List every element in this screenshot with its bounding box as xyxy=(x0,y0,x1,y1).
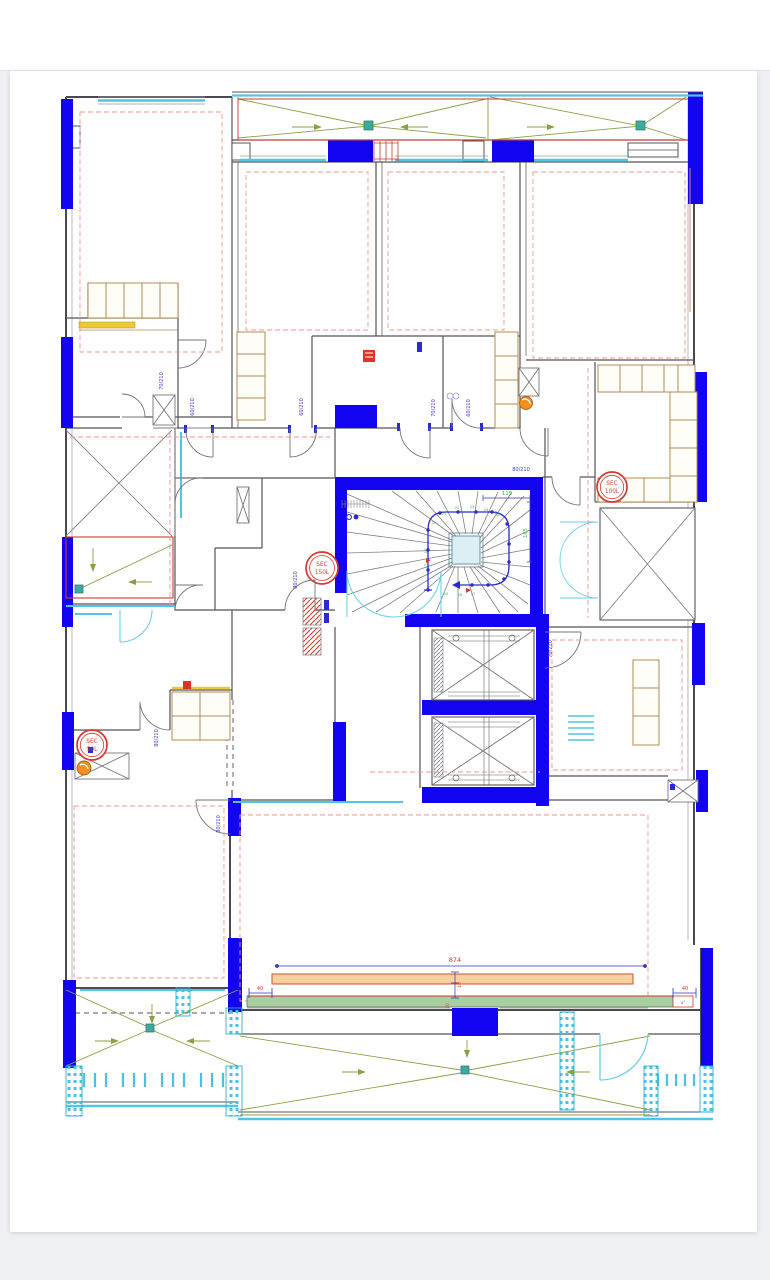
beam-detail xyxy=(247,965,696,1008)
plan-label: 80/210 xyxy=(512,467,530,473)
plan-label: 20 xyxy=(432,521,437,525)
plan-label: 30 xyxy=(445,1003,451,1009)
plan-label: 24 xyxy=(484,508,489,512)
plan-label: 17 xyxy=(424,564,428,569)
plan-label: 40 xyxy=(257,986,263,992)
duct-shaft xyxy=(303,628,321,655)
plan-label: 26 xyxy=(458,593,463,597)
plan-label: 27 xyxy=(471,592,476,596)
stair-core xyxy=(452,536,480,564)
plan-label: 10 xyxy=(457,982,463,988)
plan-label: 21 xyxy=(442,512,447,516)
plan-label: 874 xyxy=(449,956,461,964)
slab-strip xyxy=(247,996,673,1007)
plan-label: SEC xyxy=(606,481,617,487)
stair xyxy=(342,490,533,614)
plan-label: 40 xyxy=(682,986,688,992)
boiler xyxy=(77,761,91,775)
plan-label: 23 xyxy=(470,505,475,509)
plan-label: 50L xyxy=(87,747,98,753)
plan-label: 150L xyxy=(315,570,330,576)
plan-label: SEC xyxy=(86,739,97,745)
beam xyxy=(272,974,633,984)
plan-label: 80/210 xyxy=(216,815,222,833)
plan-label: SEC xyxy=(316,562,327,568)
plan-label: 18 xyxy=(424,548,428,553)
plan-label: 70/210 xyxy=(548,640,554,658)
plan-label: 60/210 xyxy=(190,398,196,416)
plan-label: 19 xyxy=(427,534,432,538)
plan-label: 80/210 xyxy=(293,571,299,589)
plan-label: 60/210 xyxy=(299,398,305,416)
plan-label: 70/210 xyxy=(159,372,165,390)
electrical-panel xyxy=(183,681,191,689)
plan-label: 165 xyxy=(523,528,529,538)
plan-label: 70/210 xyxy=(431,399,437,417)
plan-label: a° xyxy=(681,1000,685,1005)
stair-handrail-post xyxy=(354,515,359,520)
plan-label: 25 xyxy=(444,592,449,596)
plan-label: 100L xyxy=(605,489,620,495)
floor-plan-svg: 87440401030a°1151659080/21080/21080/2108… xyxy=(0,0,770,1280)
electrical-panel xyxy=(363,350,375,362)
duct-shaft xyxy=(303,598,321,625)
plan-label: 60/210 xyxy=(466,399,472,417)
plan-label: 80/210 xyxy=(154,729,160,747)
plan-label: 115 xyxy=(502,491,513,497)
plan-label: 22 xyxy=(455,506,460,510)
